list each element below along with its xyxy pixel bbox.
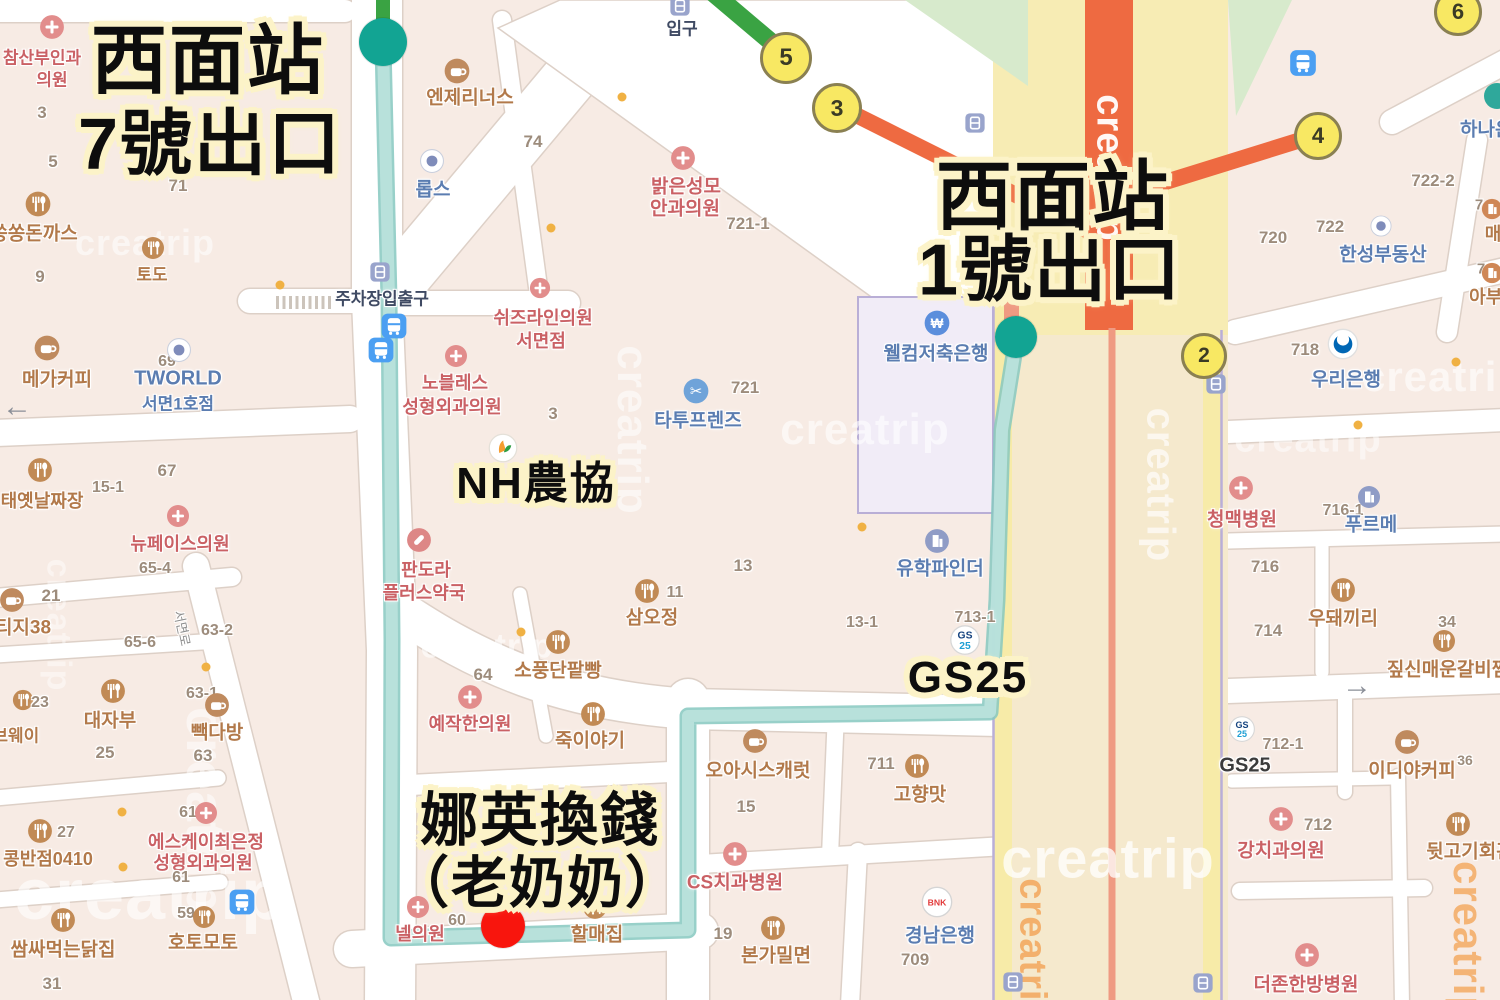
exchange-title-line2: （老奶奶） [393,839,683,920]
map-canvas[interactable]: creatripcreatripcreatripcreatripcreatrip… [0,0,1500,1000]
exit7-marker [359,18,407,66]
poi-dot [517,628,526,637]
direction-arrow: ← [2,390,32,424]
exit1-marker [995,316,1037,358]
subway-line-badge-5: 5 [760,32,812,84]
poi-dot [118,808,127,817]
direction-arrow: → [1342,669,1372,703]
subway-line-badge-3: 3 [812,83,862,133]
poi-dot [202,663,211,672]
poi-dot [1354,421,1363,430]
exit7-title-line2: 7號出口 [78,85,342,190]
subway-line-badge-2: 2 [1181,333,1227,379]
exit1-title-line2: 1號出口 [918,211,1182,316]
poi-dot [276,281,285,290]
nh-bank-annotation: NH農協 [456,447,616,511]
poi-dot [618,93,627,102]
gs25-annotation: GS25 [908,653,1029,703]
poi-dot [119,863,128,872]
poi-dot [547,224,556,233]
poi-dot [858,523,867,532]
poi-dot [1452,358,1461,367]
subway-line-badge-4: 4 [1294,112,1342,160]
